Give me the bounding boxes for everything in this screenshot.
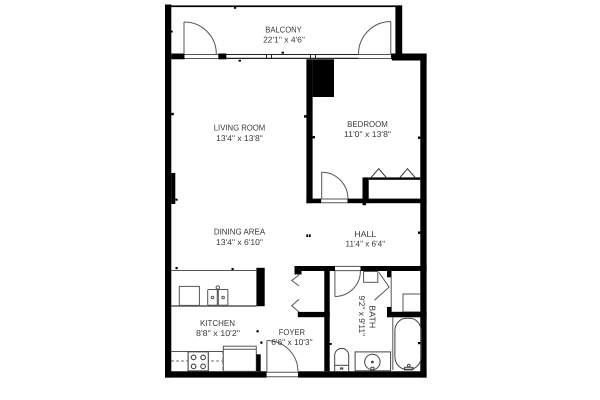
svg-text:6'6" x 10'3": 6'6" x 10'3" (271, 337, 312, 347)
svg-text:22'1" x 4'6": 22'1" x 4'6" (263, 35, 305, 45)
svg-text:11'0" x 13'8": 11'0" x 13'8" (344, 129, 391, 139)
svg-text:LIVING ROOM: LIVING ROOM (214, 123, 266, 133)
svg-text:11'4" x 6'4": 11'4" x 6'4" (346, 238, 386, 248)
svg-text:9'2" x 9'11": 9'2" x 9'11" (357, 296, 367, 337)
svg-text:DINING AREA: DINING AREA (214, 227, 266, 237)
svg-text:BALCONY: BALCONY (265, 25, 302, 35)
svg-text:BEDROOM: BEDROOM (347, 119, 388, 129)
svg-text:13'4" x 6'10": 13'4" x 6'10" (216, 237, 263, 247)
svg-text:8'8" x 10'2": 8'8" x 10'2" (196, 328, 240, 338)
svg-text:KITCHEN: KITCHEN (200, 318, 235, 328)
svg-text:BATH: BATH (367, 305, 377, 328)
svg-text:FOYER: FOYER (279, 327, 305, 337)
svg-text:13'4" x 13'8": 13'4" x 13'8" (216, 133, 263, 143)
